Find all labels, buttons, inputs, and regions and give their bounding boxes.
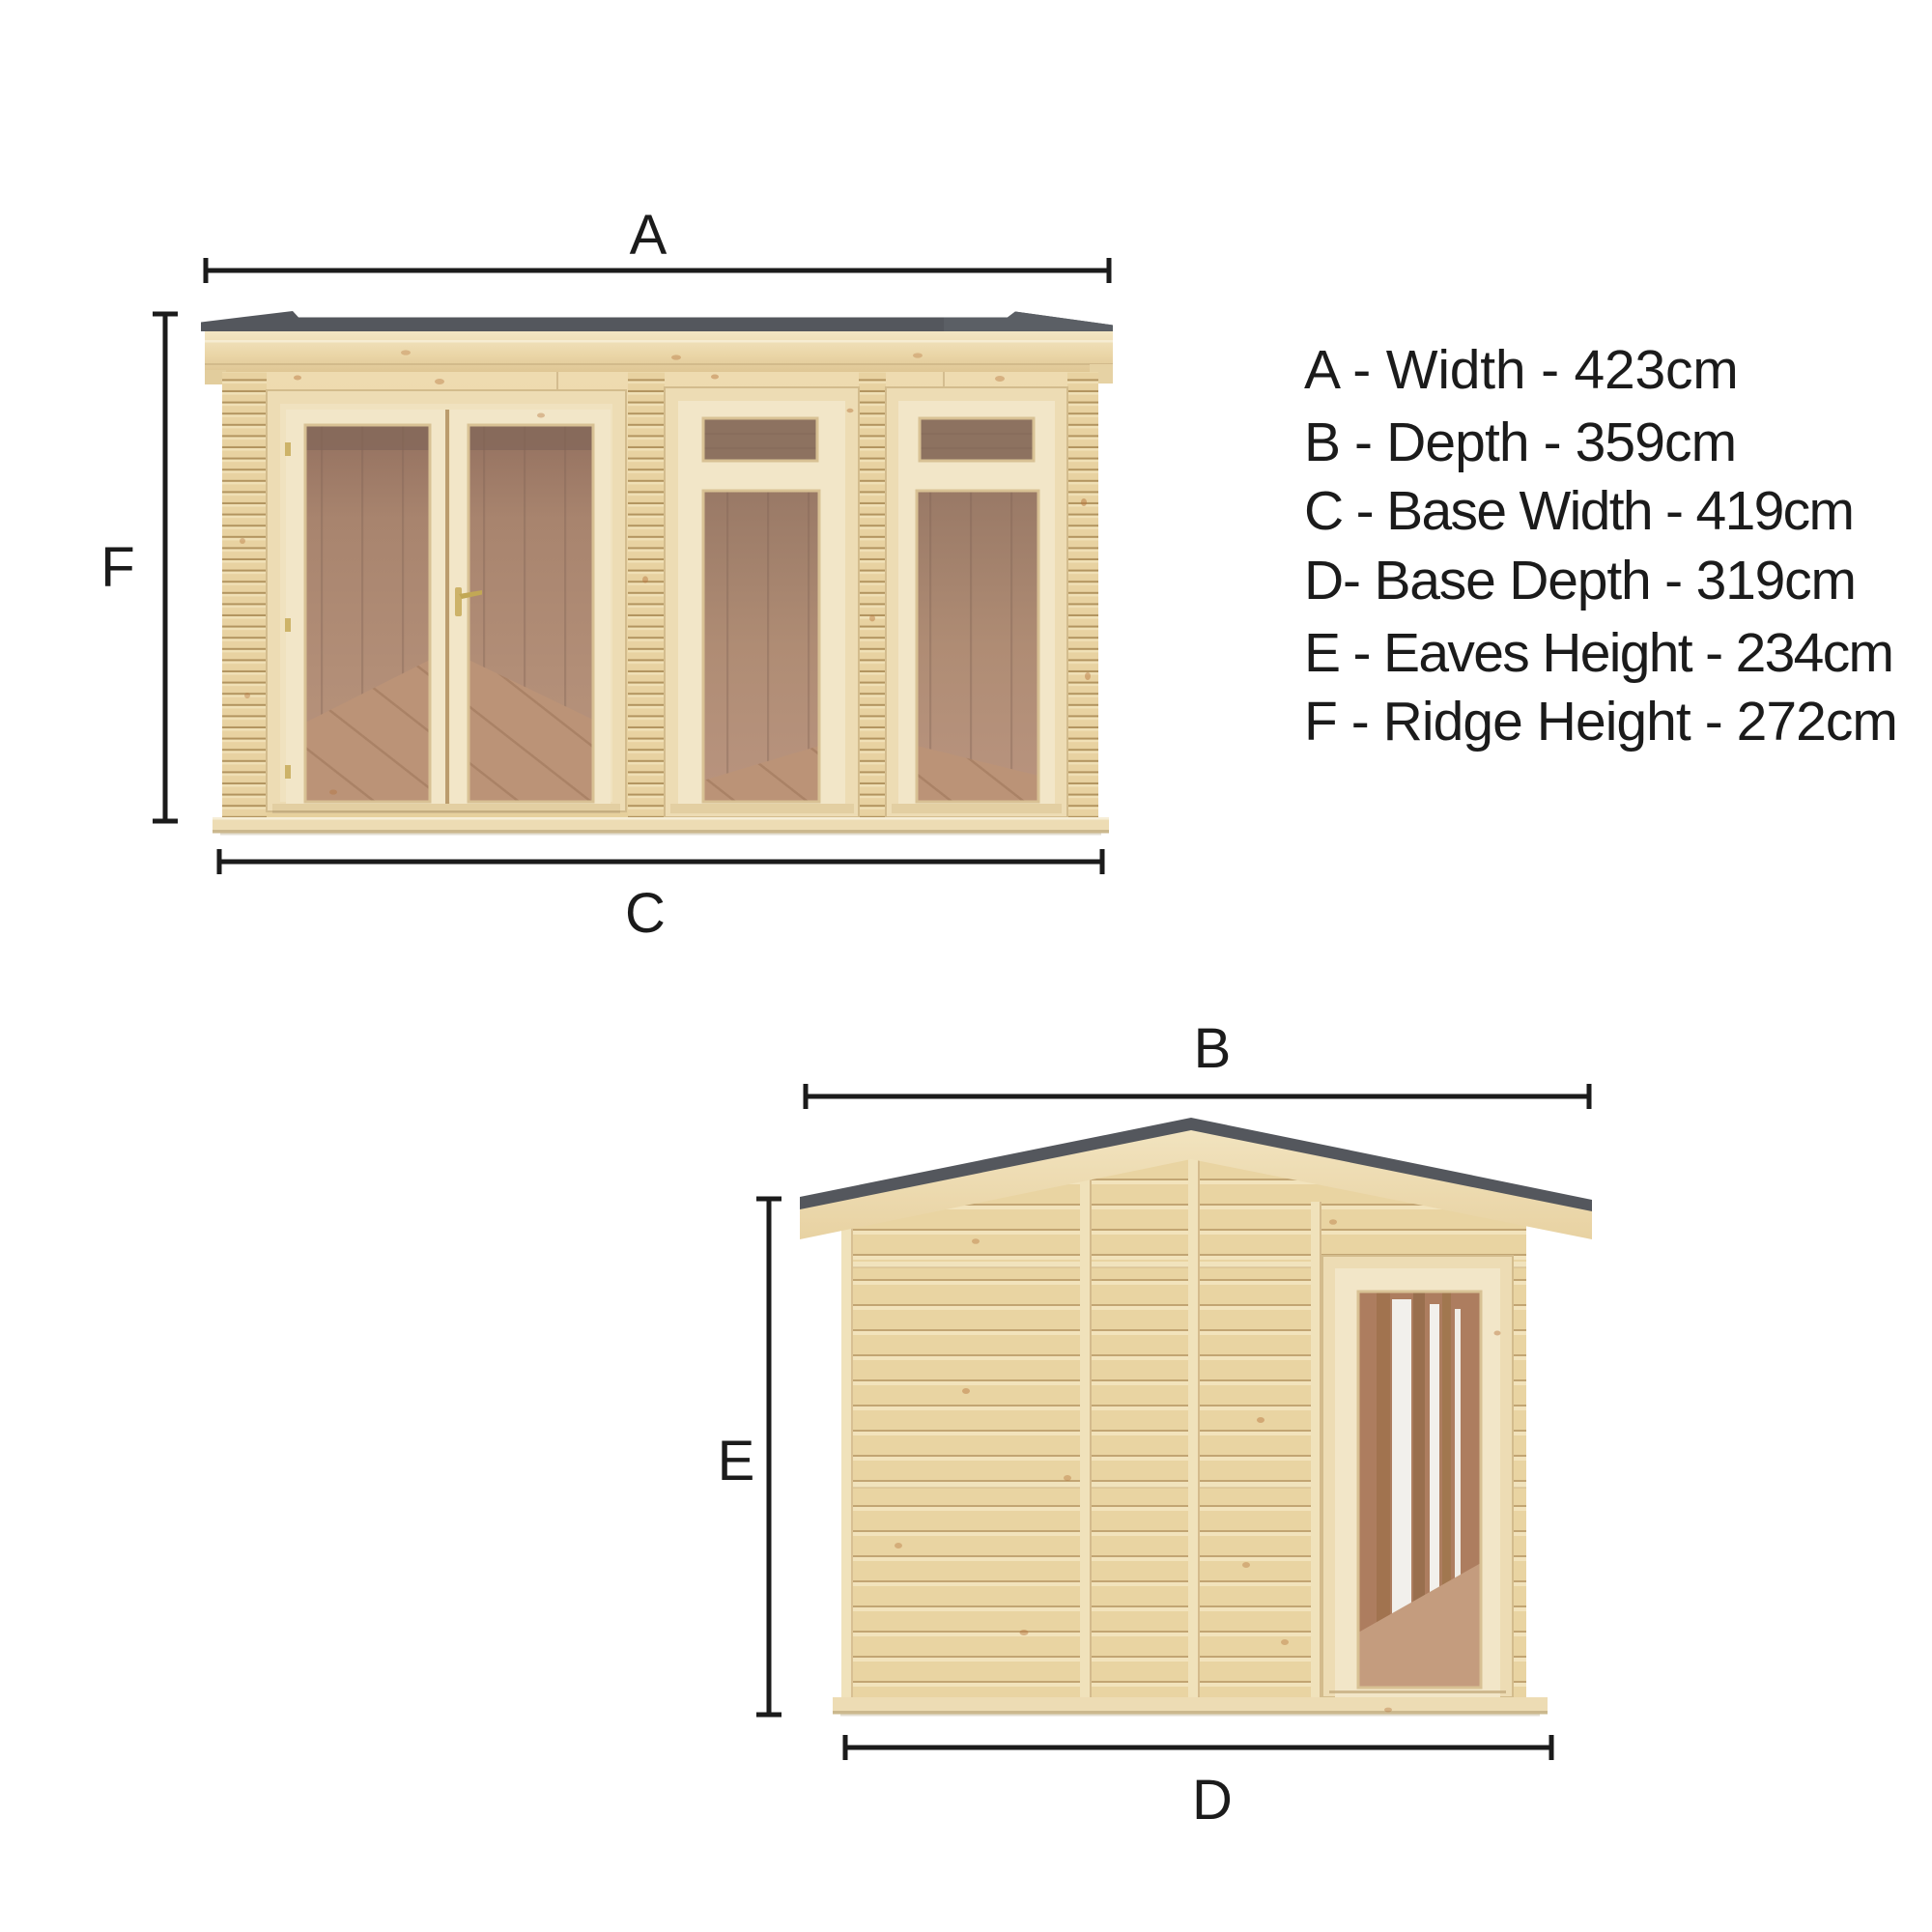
svg-text:D- Base Depth - 319cm: D- Base Depth - 319cm: [1304, 550, 1856, 611]
svg-text:E - Eaves Height - 234cm: E - Eaves Height - 234cm: [1304, 622, 1892, 684]
svg-text:C: C: [625, 882, 666, 945]
svg-text:D: D: [1192, 1769, 1233, 1832]
svg-text:E: E: [718, 1430, 755, 1492]
svg-text:C - Base Width - 419cm: C - Base Width - 419cm: [1304, 480, 1853, 542]
svg-text:F: F: [100, 536, 134, 599]
svg-text:F - Ridge Height - 272cm: F - Ridge Height - 272cm: [1304, 691, 1897, 753]
svg-text:B: B: [1194, 1017, 1232, 1080]
svg-text:B - Depth - 359cm: B - Depth - 359cm: [1304, 412, 1736, 473]
svg-text:A - Width - 423cm: A - Width - 423cm: [1304, 339, 1739, 401]
svg-text:A: A: [630, 204, 668, 267]
